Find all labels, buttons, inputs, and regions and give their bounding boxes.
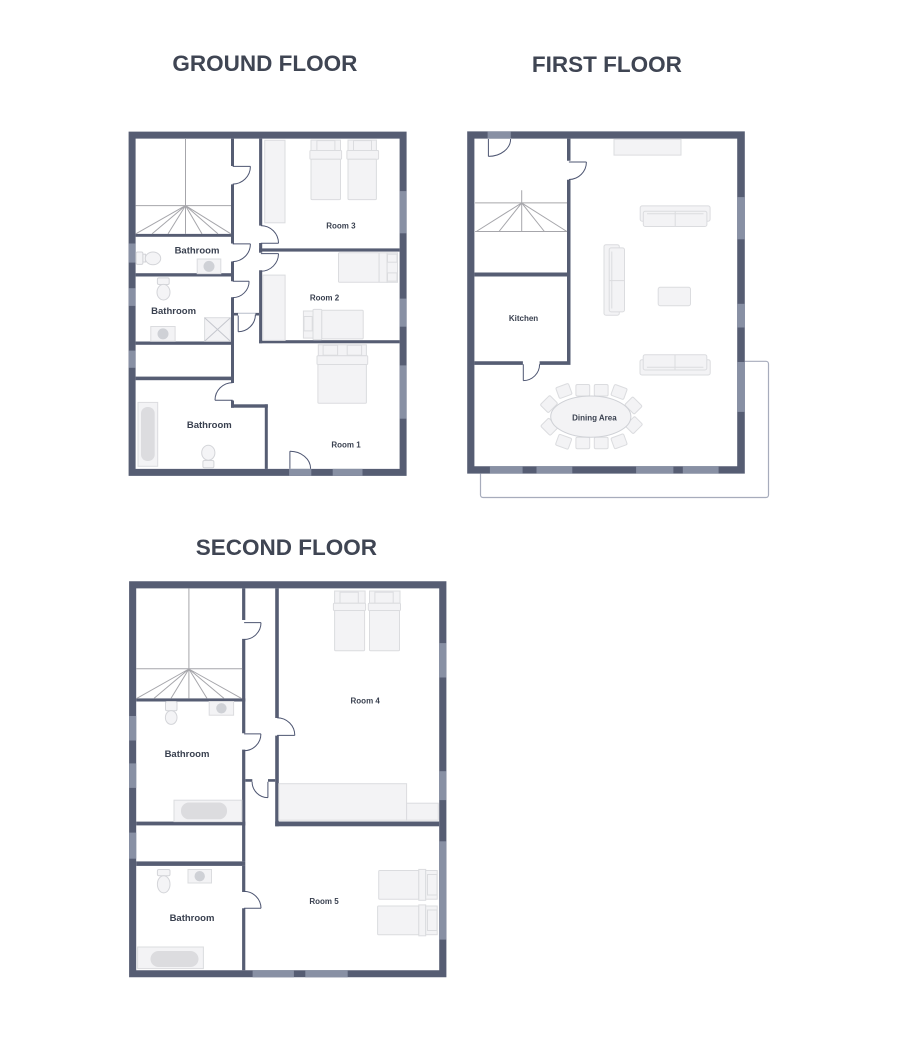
svg-text:Kitchen: Kitchen — [509, 314, 538, 323]
svg-text:Bathroom: Bathroom — [151, 306, 196, 317]
svg-text:SECOND FLOOR: SECOND FLOOR — [196, 535, 377, 560]
svg-text:Room 4: Room 4 — [351, 697, 381, 706]
svg-text:Room 2: Room 2 — [310, 294, 340, 303]
svg-text:Room 1: Room 1 — [331, 440, 361, 449]
svg-text:FIRST FLOOR: FIRST FLOOR — [532, 52, 682, 77]
svg-text:Room 5: Room 5 — [309, 897, 339, 906]
svg-text:Bathroom: Bathroom — [175, 246, 220, 257]
svg-text:Bathroom: Bathroom — [170, 913, 215, 924]
svg-text:Bathroom: Bathroom — [187, 420, 232, 431]
svg-text:Bathroom: Bathroom — [165, 749, 210, 760]
svg-text:Room 3: Room 3 — [326, 222, 356, 231]
svg-text:Dining Area: Dining Area — [572, 413, 617, 422]
svg-text:GROUND FLOOR: GROUND FLOOR — [172, 51, 357, 76]
